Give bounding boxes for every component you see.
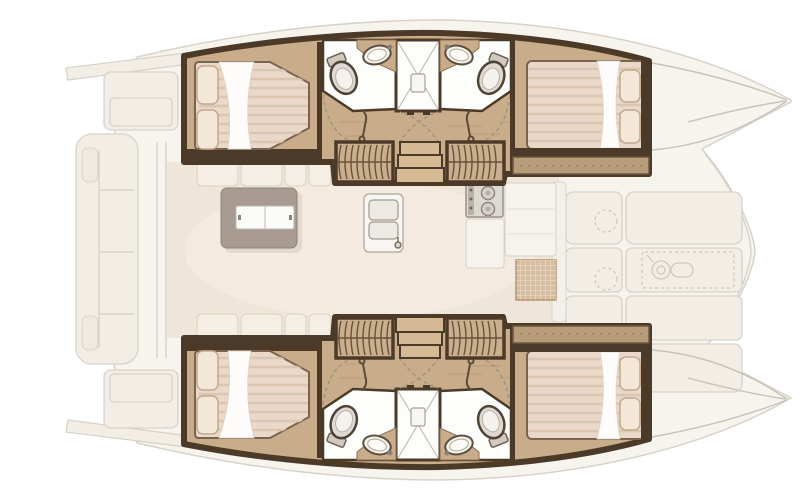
shower-drain <box>411 74 425 92</box>
sink-basin-icon <box>369 200 398 220</box>
forward-cabin <box>510 40 650 174</box>
sink-basin-icon <box>369 222 398 239</box>
headboard <box>641 59 650 152</box>
galley-counter <box>466 219 504 268</box>
pillow-icon <box>620 110 640 143</box>
floor-mat <box>516 260 556 300</box>
faucet-icon <box>388 45 393 50</box>
partition-wall <box>317 42 322 160</box>
pillow-icon <box>620 70 640 102</box>
floorplan-canvas <box>0 0 810 500</box>
bench-cushion-top <box>82 148 98 182</box>
stairs-aft <box>336 142 393 182</box>
floorplan-stage <box>0 0 810 500</box>
dining-table <box>221 188 302 253</box>
galley-island <box>364 194 403 252</box>
double-bed <box>527 59 650 152</box>
galley-stove <box>466 183 503 217</box>
pillow-icon <box>197 110 218 149</box>
stairs-fwd <box>447 142 504 182</box>
double-bed <box>195 62 309 149</box>
entry-steps <box>396 142 444 183</box>
bench-cushion-bottom <box>82 316 98 350</box>
faucet-icon <box>395 242 401 248</box>
hull-side-shelf <box>513 157 649 174</box>
galley-cabinets <box>505 183 556 256</box>
faucet-icon <box>445 45 450 50</box>
pillow-icon <box>197 66 218 104</box>
